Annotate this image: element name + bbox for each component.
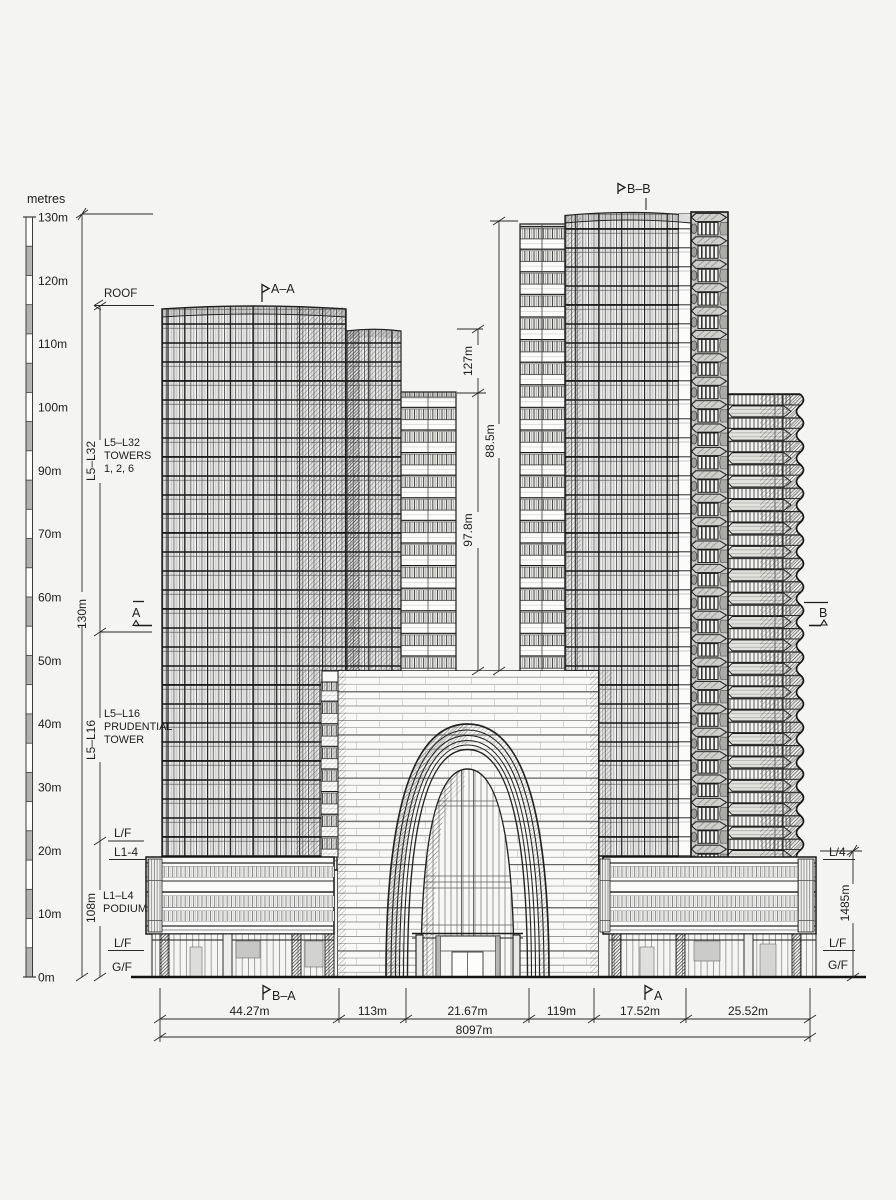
svg-text:G/F: G/F — [828, 958, 848, 972]
svg-text:A–A: A–A — [271, 282, 295, 296]
svg-text:B–A: B–A — [272, 989, 296, 1003]
svg-text:G/F: G/F — [112, 960, 132, 974]
svg-text:20m: 20m — [38, 844, 61, 858]
svg-text:L5–L16: L5–L16 — [84, 720, 98, 760]
svg-text:L/F: L/F — [114, 936, 131, 950]
svg-text:60m: 60m — [38, 591, 61, 605]
svg-text:TOWER: TOWER — [104, 734, 144, 746]
svg-text:100m: 100m — [38, 401, 68, 415]
svg-text:108m: 108m — [84, 893, 98, 923]
svg-text:30m: 30m — [38, 781, 61, 795]
svg-text:130m: 130m — [75, 599, 89, 629]
svg-text:L/F: L/F — [114, 826, 131, 840]
svg-text:21.67m: 21.67m — [447, 1004, 487, 1018]
svg-text:PRUDENTIAL: PRUDENTIAL — [104, 721, 172, 733]
svg-text:A: A — [132, 606, 141, 620]
svg-text:metres: metres — [27, 192, 65, 206]
svg-text:70m: 70m — [38, 527, 61, 541]
svg-text:90m: 90m — [38, 464, 61, 478]
svg-text:25.52m: 25.52m — [728, 1004, 768, 1018]
svg-text:40m: 40m — [38, 717, 61, 731]
svg-text:97.8m: 97.8m — [461, 513, 475, 546]
svg-text:10m: 10m — [38, 907, 61, 921]
svg-text:17.52m: 17.52m — [620, 1004, 660, 1018]
svg-text:L5–L32: L5–L32 — [84, 441, 98, 481]
svg-text:PODIUM: PODIUM — [103, 903, 147, 915]
svg-text:8097m: 8097m — [456, 1023, 493, 1037]
svg-text:1, 2, 6: 1, 2, 6 — [104, 463, 134, 475]
svg-text:A: A — [654, 989, 663, 1003]
svg-text:L/F: L/F — [829, 936, 846, 950]
svg-text:113m: 113m — [358, 1004, 387, 1018]
svg-text:B–B: B–B — [627, 182, 651, 196]
svg-text:L1-4: L1-4 — [114, 845, 138, 859]
svg-text:110m: 110m — [38, 337, 67, 351]
svg-text:B: B — [819, 606, 827, 620]
svg-text:119m: 119m — [547, 1004, 576, 1018]
svg-text:L5–L16: L5–L16 — [104, 708, 140, 720]
svg-text:ROOF: ROOF — [104, 288, 137, 300]
svg-text:127m: 127m — [461, 346, 475, 376]
svg-text:L5–L32: L5–L32 — [104, 437, 140, 449]
svg-text:120m: 120m — [38, 274, 68, 288]
svg-text:50m: 50m — [38, 654, 61, 668]
svg-text:TOWERS: TOWERS — [104, 450, 151, 462]
svg-text:44.27m: 44.27m — [229, 1004, 269, 1018]
svg-text:L1–L4: L1–L4 — [103, 890, 134, 902]
svg-text:L/4: L/4 — [829, 845, 846, 859]
svg-text:1485m: 1485m — [838, 885, 852, 922]
svg-text:130m: 130m — [38, 211, 68, 225]
svg-text:0m: 0m — [38, 971, 55, 985]
svg-text:88.5m: 88.5m — [483, 424, 497, 457]
